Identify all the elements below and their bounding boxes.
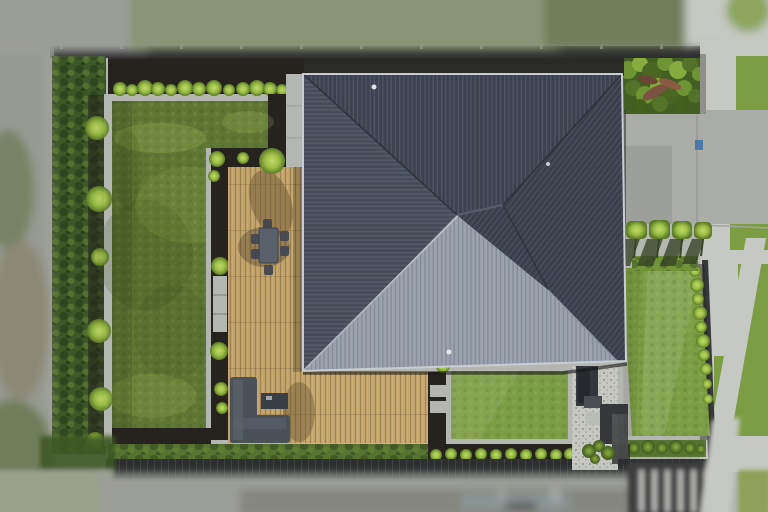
garden-plant xyxy=(633,99,647,113)
dining-chair xyxy=(264,265,273,275)
pleached-tree-canopy xyxy=(649,220,670,239)
pleached-tree-canopy xyxy=(626,221,647,239)
step-paver xyxy=(584,396,602,408)
buxus-ball-shrub xyxy=(165,84,177,96)
buxus-ball-shrub xyxy=(137,80,153,96)
buxus-ball-shrub xyxy=(177,80,193,96)
blur-verge xyxy=(0,470,113,512)
wheelie-bin xyxy=(695,140,703,150)
lawn-mottle-patch xyxy=(134,284,210,380)
front-border-shrub xyxy=(475,448,487,460)
garden-plant xyxy=(673,97,687,111)
dining-chair xyxy=(280,231,289,241)
roof-vent xyxy=(546,162,550,166)
border-shrub xyxy=(214,382,228,396)
buxus-ball-shrub xyxy=(126,84,138,96)
deck-corner-shrub xyxy=(259,148,285,174)
grass-berm xyxy=(736,56,768,112)
hedge-ball-shrub xyxy=(85,116,109,140)
front-border-shrub xyxy=(535,448,547,460)
neighbor-roof-stripe xyxy=(665,470,670,512)
hip-roof xyxy=(303,74,626,371)
blurred-left-edge xyxy=(0,48,52,500)
neighbor-roof-stripe xyxy=(652,470,657,512)
blurred-street xyxy=(100,474,660,512)
se-hedge-shrub xyxy=(669,440,683,454)
boundary-hedge-shrub xyxy=(702,379,712,389)
border-shrub xyxy=(211,257,229,275)
border-shrub xyxy=(209,151,225,167)
buxus-ball-shrub xyxy=(151,82,165,96)
paver xyxy=(430,401,446,413)
hedge-cast-shadow xyxy=(112,101,132,428)
garden-plant xyxy=(688,89,702,103)
hedge-ball-shrub xyxy=(86,186,112,212)
pleached-trees xyxy=(626,220,712,239)
hedge-ball-shrub xyxy=(87,319,111,343)
buxus-ball-shrub xyxy=(192,82,206,96)
se-hedge-shrub xyxy=(656,442,668,454)
coffee-table-tray xyxy=(266,396,272,400)
side-path xyxy=(286,74,304,170)
blurred-top-edge xyxy=(0,0,768,52)
deck-border-bed xyxy=(208,148,229,440)
roof-vent xyxy=(447,350,452,355)
blur-road xyxy=(240,489,660,512)
sofa-cushion xyxy=(233,380,243,440)
aerial-photo-canvas xyxy=(0,0,768,512)
front-border-shrub xyxy=(445,448,457,460)
border-shrub xyxy=(216,402,228,414)
lawn-edge-strip xyxy=(206,148,211,440)
garden-plant xyxy=(652,96,668,112)
blur-neighbor-path xyxy=(0,0,148,52)
blur-post xyxy=(553,488,558,502)
dining-chair xyxy=(280,246,289,256)
blur-field-dark xyxy=(545,0,695,48)
sofa-cushion xyxy=(234,418,286,429)
pleached-tree-canopy xyxy=(672,221,692,239)
front-border-shrub xyxy=(505,448,517,460)
blur-post xyxy=(500,489,504,501)
boundary-hedge-shrub xyxy=(703,394,713,404)
neighbor-roof-stripe xyxy=(678,470,683,512)
low-wall xyxy=(700,54,706,114)
wall-shadow xyxy=(612,414,628,444)
boundary-hedge-shrub xyxy=(700,363,712,375)
buxus-ball-shrub xyxy=(223,84,235,96)
boundary-hedge-shrub xyxy=(696,334,710,348)
step-paver xyxy=(586,412,602,425)
entry-plant xyxy=(590,454,600,464)
buxus-ball-shrub xyxy=(206,80,222,96)
neighbor-roof-stripe xyxy=(639,470,644,512)
deck-corner-shrub xyxy=(237,152,249,164)
border-shrub xyxy=(210,342,228,360)
boundary-hedge-shrub xyxy=(690,278,704,292)
coffee-table xyxy=(261,393,288,409)
buxus-ball-shrub xyxy=(113,82,127,96)
outdoor-dining-table xyxy=(259,228,278,263)
aerial-photo xyxy=(0,0,768,512)
blur-grass xyxy=(738,470,768,512)
hedge-texture xyxy=(108,444,432,459)
buxus-ball-shrub xyxy=(236,82,250,96)
blur-field xyxy=(130,0,560,50)
se-hedge-shrub xyxy=(641,440,655,454)
neighbor-roof-stripe xyxy=(691,470,696,512)
se-hedge-shrub xyxy=(684,442,696,454)
lawn-mottle-patch xyxy=(222,111,274,133)
mulch-strip xyxy=(112,428,211,446)
paver xyxy=(430,385,446,397)
boundary-hedge-shrub xyxy=(695,321,707,333)
blur-dark-object xyxy=(506,502,536,510)
stepping-pavers xyxy=(213,276,227,332)
boundary-hedge-shrub xyxy=(698,349,710,361)
se-hedge-shrub xyxy=(696,444,706,454)
edge-strip xyxy=(446,370,451,444)
pleached-tree-canopy xyxy=(694,222,712,239)
buxus-ball-shrub xyxy=(263,82,277,96)
driveway-shade-strip xyxy=(622,146,672,224)
boundary-hedge-shrub xyxy=(693,306,707,320)
boundary-hedge-shrub xyxy=(692,293,704,305)
buxus-ball-shrub xyxy=(249,80,265,96)
entry-plant xyxy=(601,446,615,460)
border-shrub xyxy=(208,170,220,182)
roof-vent xyxy=(372,85,377,90)
